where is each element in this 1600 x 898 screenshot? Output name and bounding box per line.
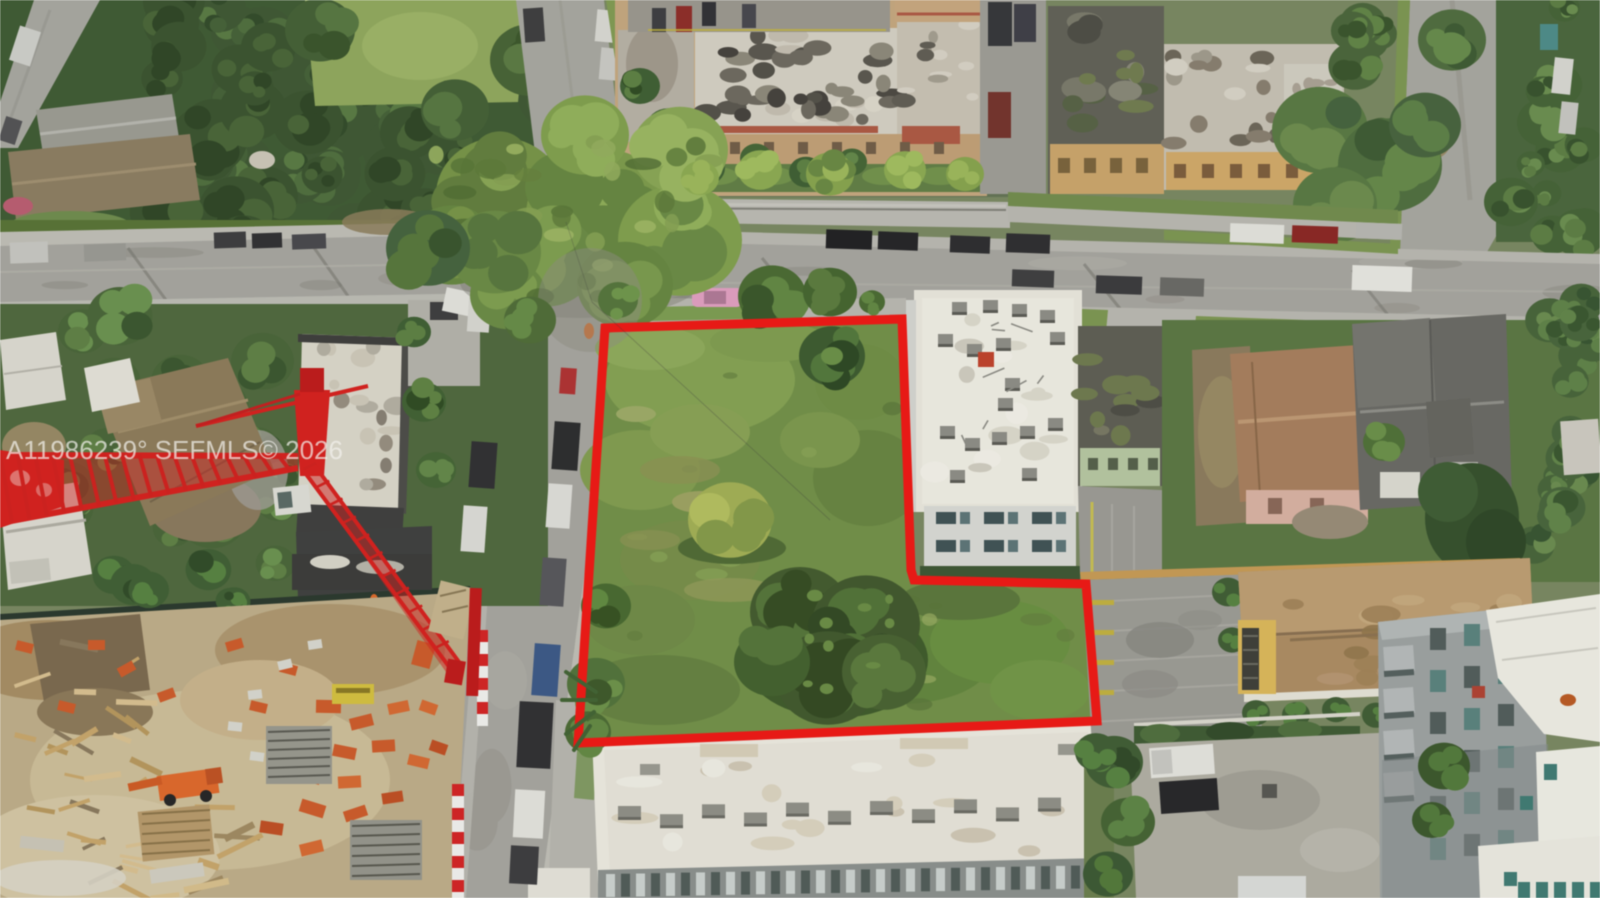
svg-text:A11986239° SEFMLS© 2026: A11986239° SEFMLS© 2026 <box>6 435 343 465</box>
